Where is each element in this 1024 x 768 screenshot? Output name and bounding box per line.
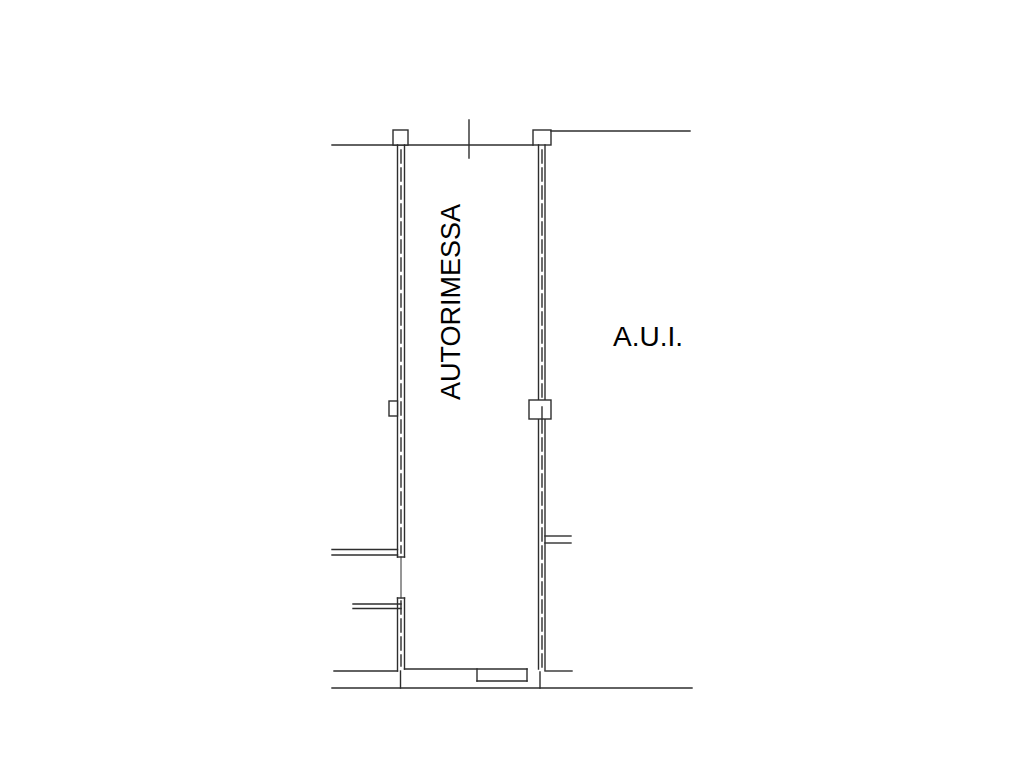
floorplan-canvas: AUTORIMESSA A.U.I.: [0, 0, 1024, 768]
top-left-pillar: [393, 130, 408, 145]
right-wall-pilaster: [529, 400, 551, 419]
left-wall-protrusion: [389, 401, 398, 416]
area-label: A.U.I.: [613, 321, 683, 352]
plan-labels: AUTORIMESSA A.U.I.: [436, 204, 684, 400]
floorplan-drawing: AUTORIMESSA A.U.I.: [0, 0, 1024, 768]
plan-linework: [332, 120, 692, 688]
top-right-pillar: [533, 130, 551, 145]
room-label: AUTORIMESSA: [436, 204, 466, 400]
